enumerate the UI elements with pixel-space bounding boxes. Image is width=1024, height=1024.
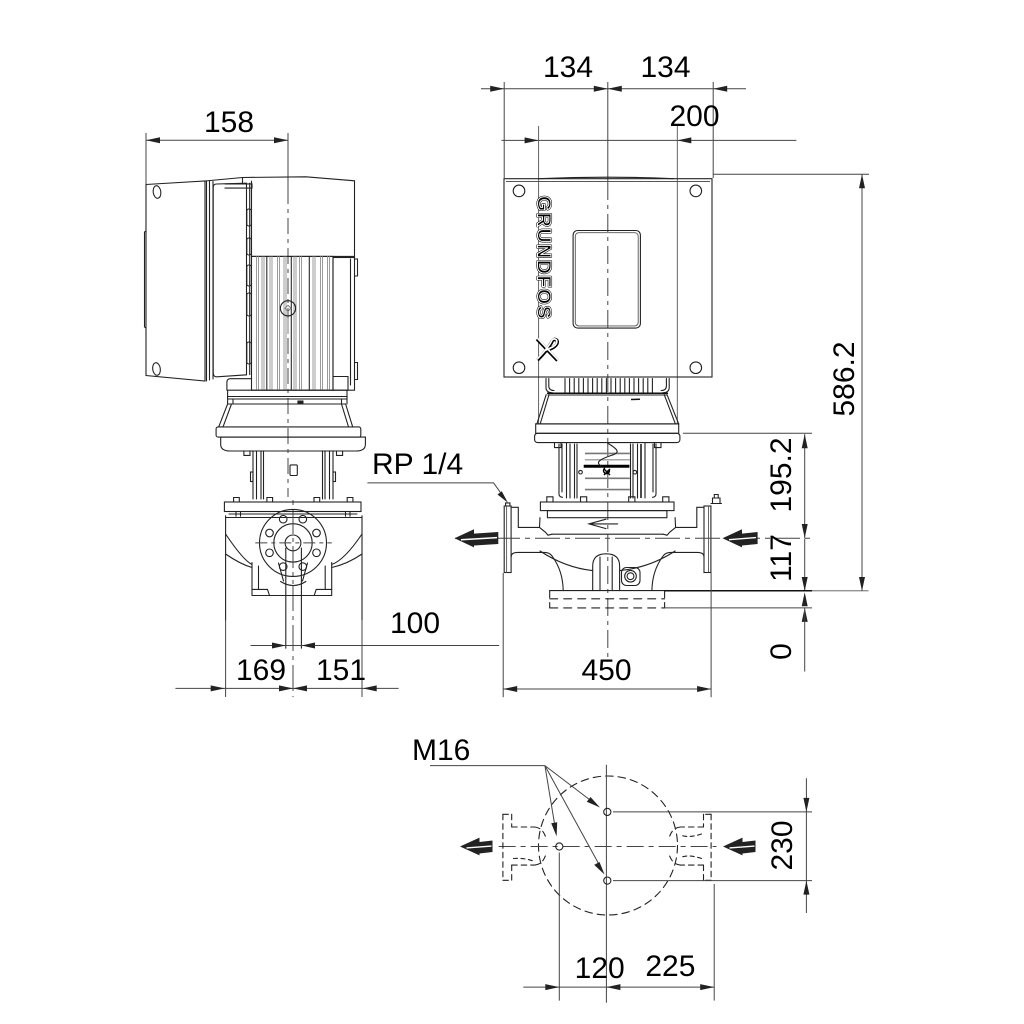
svg-text:M16: M16	[412, 734, 470, 767]
svg-text:225: 225	[645, 950, 695, 983]
svg-text:0: 0	[765, 643, 798, 660]
svg-text:450: 450	[581, 654, 631, 687]
svg-text:RP 1/4: RP 1/4	[372, 448, 463, 481]
svg-text:120: 120	[575, 952, 625, 985]
svg-text:117: 117	[765, 534, 798, 582]
svg-text:169: 169	[236, 654, 286, 687]
svg-text:586.2: 586.2	[828, 341, 861, 416]
svg-text:230: 230	[766, 820, 799, 870]
svg-text:100: 100	[390, 607, 440, 640]
svg-text:GRUNDFOS: GRUNDFOS	[533, 196, 555, 320]
svg-text:134: 134	[640, 51, 690, 84]
svg-text:158: 158	[204, 106, 254, 139]
svg-text:195.2: 195.2	[765, 437, 798, 512]
svg-text:151: 151	[316, 654, 366, 687]
svg-text:134: 134	[543, 51, 593, 84]
